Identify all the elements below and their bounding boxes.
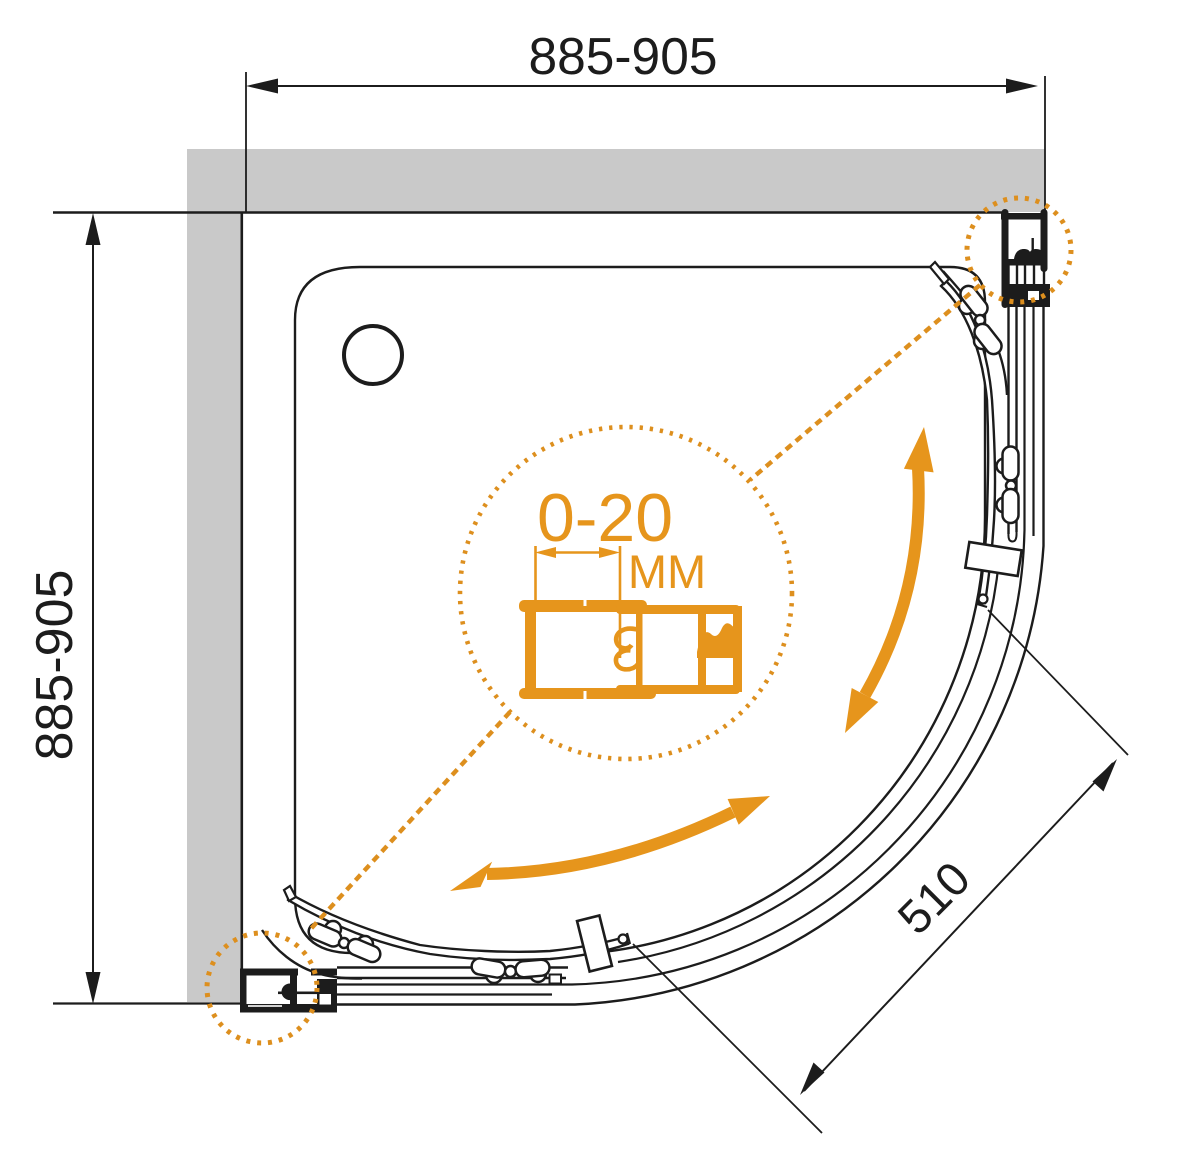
svg-text:MM: MM (628, 545, 706, 598)
svg-text:885-905: 885-905 (528, 27, 717, 85)
svg-text:885-905: 885-905 (26, 570, 84, 761)
